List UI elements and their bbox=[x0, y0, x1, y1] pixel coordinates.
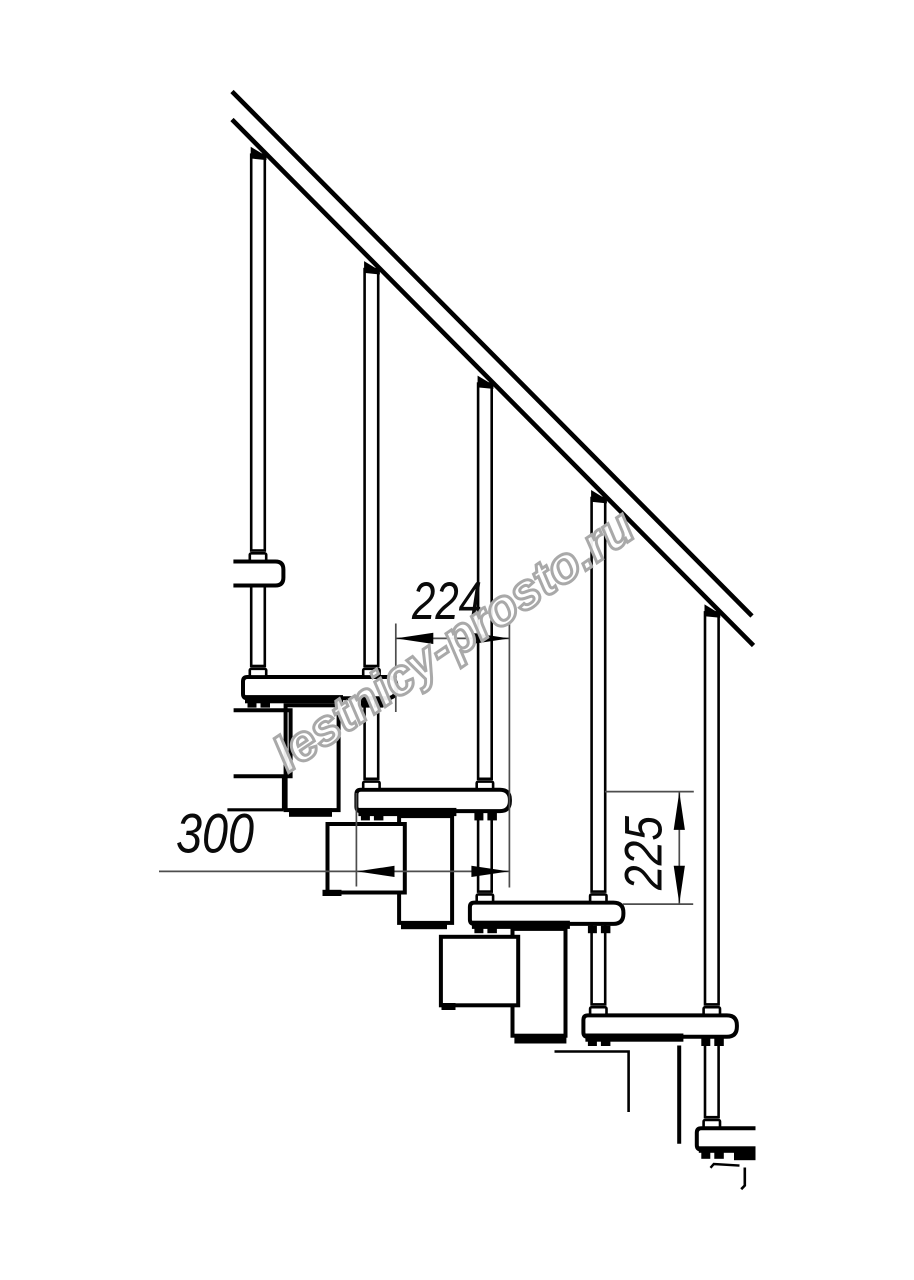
svg-text:225: 225 bbox=[615, 816, 674, 891]
svg-text:300: 300 bbox=[176, 802, 254, 865]
